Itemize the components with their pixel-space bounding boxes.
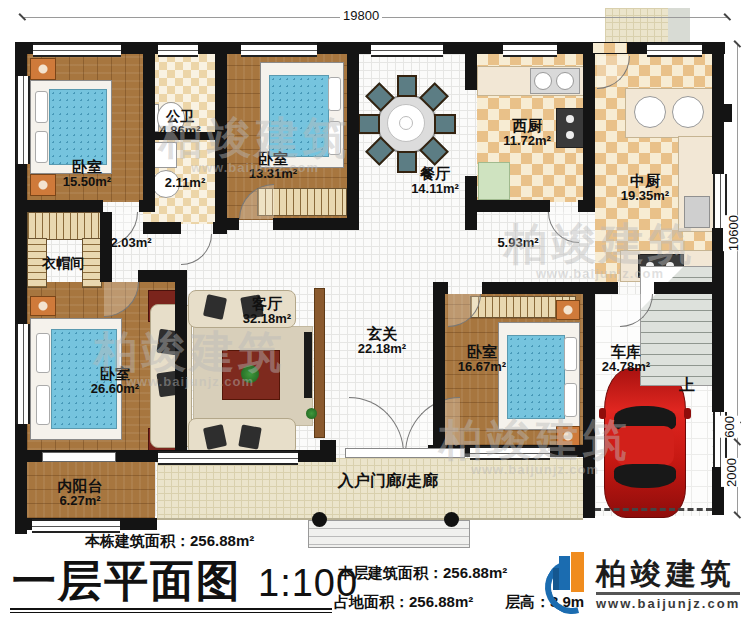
window-dining-top [371,43,443,57]
wall-bed1-bottom-b [139,200,155,212]
wall-westkitchen-bottom-a [465,200,550,212]
floor-area-text: 本层建筑面积：256.88m² [338,564,507,583]
label-bedroom3: 卧室16.67m² [437,343,527,375]
sink-basin [556,72,574,90]
nightstand [556,300,580,320]
label-bedroom2: 卧室13.31m² [228,150,318,182]
sheet-title-text: 一层平面图 [12,556,242,605]
pillow [564,383,577,417]
title-underline [10,608,332,610]
kitchen-basin [634,96,666,128]
sheet-title: 一层平面图1:100 [12,552,358,611]
wall-master-top-b [138,270,187,282]
sofa-cushion [203,424,227,450]
window-master-left [16,324,30,424]
dining-chair [434,114,456,134]
label-porch: 入户门廊/走廊 [298,472,478,490]
door-gap-mainkitchen-top [593,43,627,53]
wall-bed1-bottom-a [15,200,103,212]
title-underline-2 [10,612,332,613]
window-bedroom2-top [241,43,317,57]
tv-screen [304,332,312,398]
label-balcony: 内阳台6.27m² [35,477,125,509]
exterior-landing-step [668,8,690,42]
wall-master-top-a [100,270,104,282]
dining-chair [358,114,380,134]
nightstand [30,58,56,80]
stairs-up-label: 上 [662,376,712,394]
window-mainkitchen-top [647,43,702,57]
dining-table-center [399,116,413,130]
wall-kitchens [583,54,595,202]
label-cloakroom: 衣帽间 [18,255,108,271]
table-plant [241,365,259,383]
balcony-slider [42,452,116,462]
pillow [36,333,50,373]
window-bedroom3-bottom [470,446,550,460]
brand-url: www.baijunjz.com [596,592,740,611]
floor-plan-sheet: 上 [0,0,750,625]
label-main-kitchen: 中厨19.35m² [600,172,690,204]
wall-right-bump [714,104,732,122]
land-area-text: 占地面积：256.88m² [334,593,473,612]
wall-bedroom3-top-a [433,282,448,294]
window-bedroom1-top [33,43,121,57]
window-bathroom-top [158,43,198,57]
car-rear-window [614,464,676,488]
label-living: 客厅32.18m² [222,295,312,327]
building-total-area-text: 本栋建筑面积：256.88m² [85,532,254,551]
label-bedroom1: 卧室15.50m² [42,158,132,190]
label-foyer: 玄关22.18m² [337,325,427,357]
dim-top-value: 19800 [340,8,382,23]
window-living-bottom [158,451,298,465]
wall-bed2-bottom-a [227,218,239,230]
label-garage: 车库24.78m² [581,343,671,375]
car-mirror [599,408,606,419]
entry-door-sill [345,448,465,458]
label-hall-right-area: 5.93m² [473,236,563,251]
wall-master-right [175,282,187,450]
label-west-kitchen: 西厨11.72m² [482,117,572,149]
wall-bath-bottom-a [143,222,181,234]
label-bath-wet-area: 2.11m² [140,176,230,191]
window-bedroom1-left [16,76,30,164]
kitchen-basin [672,96,704,128]
pillow [564,337,577,371]
sofa-cushion [238,424,262,449]
pillow [36,385,50,425]
pillow [328,77,341,111]
porch-column [312,512,327,527]
window-balcony-bottom [32,519,120,533]
bedroom1-mattress [49,89,107,165]
garage-door-dashed [595,508,712,511]
logo-building-blue [559,556,570,590]
wall-garage-top-b [654,282,724,294]
wall-westkitchen-bottom-b [578,200,595,212]
label-hall-left-area: 2.03m² [86,236,176,251]
porch-column [444,512,459,527]
car-roof [616,426,674,466]
wall-bedroom3-top-b [482,282,583,294]
west-kitchen-cabinet [478,162,510,200]
wall-bed2-dining [347,54,359,230]
window-westkitchen-top [503,43,557,57]
pillow [35,91,48,123]
sink-basin [534,72,552,90]
label-dining: 餐厅14.11m² [390,165,480,197]
wall-garage-left [583,282,595,518]
label-bathroom: 公卫4.86m² [135,108,225,139]
dim-right-mid-value: 600 [719,416,740,438]
nightstand [30,296,56,316]
bedroom3-bed [498,322,580,430]
dim-line-right [737,44,738,516]
wall-garage-top-a [595,282,618,294]
wall-bed2-bottom-b [273,218,359,230]
pillow [328,121,341,155]
floor-plant [306,408,317,419]
dim-right-low-value: 2000 [721,458,742,487]
wall-right-mid [712,228,724,412]
wall-porch-stub [320,440,336,462]
brand-logo-icon [545,552,591,610]
wall-bath-bed2 [215,54,227,230]
label-master-bedroom: 卧室26.60m² [70,365,160,397]
wall-dining-westkitchen-a [465,54,477,90]
bedroom2-mattress [269,75,329,157]
brand-name: 柏竣建筑 [596,554,736,595]
dining-chair [397,75,417,97]
nightstand [556,426,580,446]
wall-bath-bottom-b [213,222,227,234]
car-mirror [684,408,691,419]
dim-right-value: 10600 [723,215,744,251]
logo-building-orange [571,552,584,592]
